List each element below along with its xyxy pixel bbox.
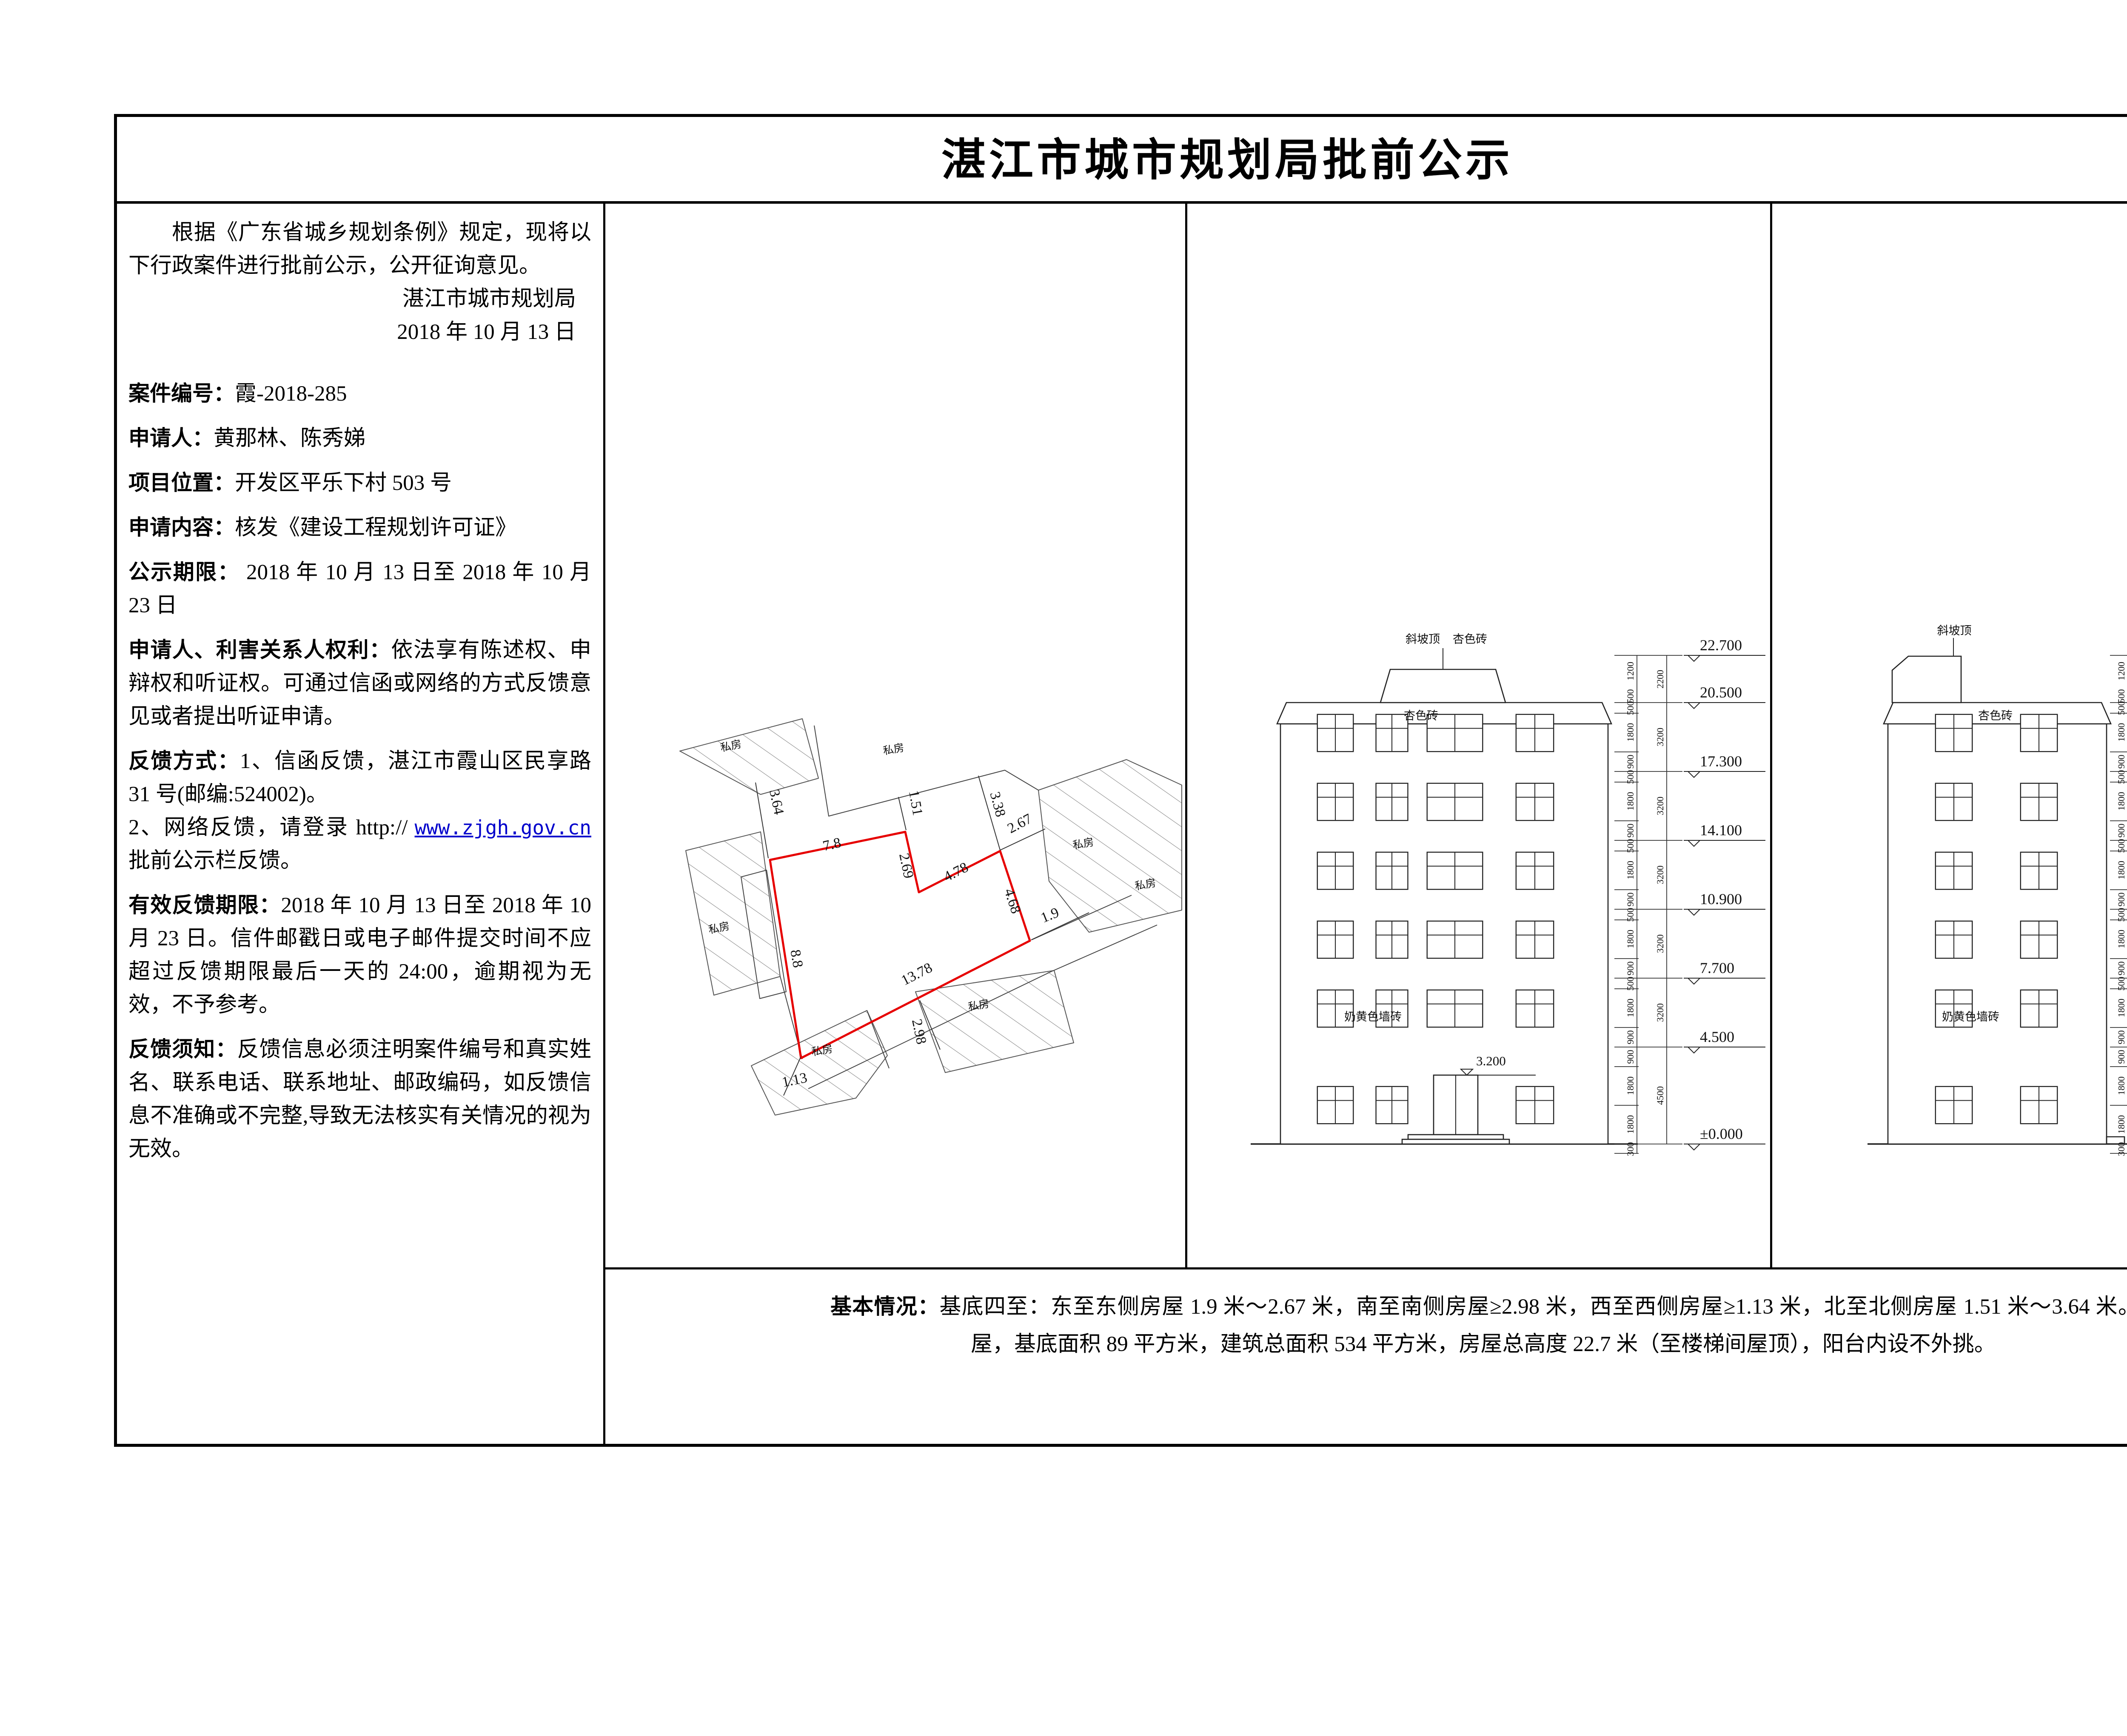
dim-inner: 500 xyxy=(1625,701,1636,715)
dim-inner: 1800 xyxy=(1625,792,1636,811)
level-value: 22.700 xyxy=(1700,637,1742,654)
front-elevation-building xyxy=(1251,648,1638,1144)
wall-brick-label: 奶黄色墙砖 xyxy=(1942,1010,1999,1023)
dim-inner: 900 xyxy=(2116,1030,2127,1044)
dim-inner: 1800 xyxy=(1625,1115,1636,1134)
dim-inner: 1800 xyxy=(2116,930,2127,948)
neighbor-parcel xyxy=(915,970,1074,1073)
neighbor-label: 私房 xyxy=(882,742,905,757)
dim-inner: 500 xyxy=(1625,839,1636,853)
level-value: 20.500 xyxy=(1700,684,1742,701)
dim-inner: 1800 xyxy=(2116,1115,2127,1134)
side-elevation-dims-inner: 1200 500 500 1800 900 500 1800 900 500 1… xyxy=(2116,662,2127,1156)
front-elevation-dims-outer: 2200 3200 3200 3200 3200 3200 4500 xyxy=(1655,670,1665,1105)
level-value: 17.300 xyxy=(1700,753,1742,770)
dim-inner: 900 xyxy=(1625,962,1636,976)
dim-inner: 900 xyxy=(1625,893,1636,907)
dim-outer: 3200 xyxy=(1655,797,1665,815)
dim-inner: 900 xyxy=(1625,755,1636,769)
dim-gap-top-left: 3.64 xyxy=(766,788,787,816)
roof-type-label: 斜坡顶 xyxy=(1937,624,1972,637)
dim-inner: 900 xyxy=(2116,755,2127,769)
dim-notch-edge: 2.69 xyxy=(896,852,917,880)
stair-bulkhead xyxy=(1892,656,1961,703)
dim-inner: 500 xyxy=(2116,908,2127,922)
dim-inner: 900 xyxy=(1625,1030,1636,1044)
neighbor-parcel xyxy=(1038,760,1182,932)
roof-type-label: 斜坡顶 xyxy=(1406,633,1440,646)
site-plan: 7.8 2.69 4.78 4.68 13.78 8.8 3.64 1.51 3… xyxy=(680,719,1182,1115)
dim-inner: 900 xyxy=(2116,962,2127,976)
dim-inner: 500 xyxy=(2116,839,2127,853)
door-step-upper xyxy=(1408,1135,1503,1139)
front-elevation: 3.200 斜坡顶 杏色砖 杏色砖 奶黄色墙砖 1200 500 500 180… xyxy=(1251,633,1765,1156)
dim-inner: 500 xyxy=(2116,977,2127,991)
neighbor-parcel xyxy=(680,719,818,794)
door-level-value: 3.200 xyxy=(1476,1053,1506,1068)
dim-inner: 500 xyxy=(1625,770,1636,784)
neighbor-parcel xyxy=(751,1010,887,1115)
dim-inner: 900 xyxy=(1625,824,1636,838)
door-step-lower xyxy=(1402,1139,1509,1144)
wall-brick-label: 奶黄色墙砖 xyxy=(1344,1010,1402,1023)
dim-inner: 300 xyxy=(1625,1142,1636,1156)
dim-inner: 900 xyxy=(2116,824,2127,838)
level-value: 14.100 xyxy=(1700,822,1742,839)
dim-inner: 1800 xyxy=(2116,723,2127,742)
front-elevation-dim-lines xyxy=(1614,655,1682,1153)
level-value: 4.500 xyxy=(1700,1028,1734,1045)
dim-outer: 3200 xyxy=(1655,865,1665,884)
front-elevation-level-values: 22.700 20.500 17.300 14.100 10.900 7.700… xyxy=(1700,637,1743,1142)
dim-inner: 1800 xyxy=(2116,861,2127,879)
dim-inner: 500 xyxy=(2116,701,2127,715)
dim-inner: 1800 xyxy=(1625,999,1636,1017)
dim-outer: 3200 xyxy=(1655,728,1665,746)
dim-right-edge: 4.68 xyxy=(1001,887,1024,916)
dim-inner: 500 xyxy=(1625,908,1636,922)
parapet-brick-label: 杏色砖 xyxy=(1404,709,1438,722)
level-value: 10.900 xyxy=(1700,891,1742,908)
dim-outer: 2200 xyxy=(1655,670,1665,689)
dim-inner: 900 xyxy=(2116,1050,2127,1064)
dim-inner: 500 xyxy=(2116,770,2127,784)
dim-inner: 300 xyxy=(2116,1142,2127,1156)
front-elevation-dims-inner: 1200 500 500 1800 900 500 1800 900 500 1… xyxy=(1625,662,1636,1156)
dim-outer: 4500 xyxy=(1655,1086,1665,1105)
drawings-canvas: 7.8 2.69 4.78 4.68 13.78 8.8 3.64 1.51 3… xyxy=(0,0,2127,1736)
side-elevation: 斜坡顶 杏色砖 奶黄色墙砖 1200 500 500 1800 900 500 … xyxy=(1868,624,2127,1156)
dim-bottom-edge: 13.78 xyxy=(899,960,935,989)
dim-inner: 1800 xyxy=(2116,999,2127,1017)
dim-upper-right-edge: 4.78 xyxy=(941,859,971,885)
dim-inner: 1800 xyxy=(2116,792,2127,811)
dim-outer: 3200 xyxy=(1655,934,1665,953)
site-plan-neighbor-parcels xyxy=(680,719,1182,1115)
dim-top-edge: 7.8 xyxy=(821,835,843,854)
dim-inner: 1800 xyxy=(2116,1076,2127,1095)
dim-inner: 500 xyxy=(1625,977,1636,991)
dim-inner: 1200 xyxy=(2116,662,2127,680)
neighbor-parcel xyxy=(686,832,780,995)
stair-bulkhead xyxy=(1380,669,1505,703)
dim-gap-right: 1.9 xyxy=(1038,905,1061,926)
dim-inner: 1200 xyxy=(1625,662,1636,680)
dim-inner: 1800 xyxy=(1625,930,1636,948)
parapet-brick-label: 杏色砖 xyxy=(1978,709,2013,722)
roof-brick-label: 杏色砖 xyxy=(1453,633,1487,646)
level-value: ±0.000 xyxy=(1700,1125,1743,1142)
dim-gap-top: 1.51 xyxy=(906,789,926,817)
dim-gap-right-upper: 2.67 xyxy=(1005,811,1035,837)
dim-inner: 900 xyxy=(1625,1050,1636,1064)
dim-inner: 900 xyxy=(2116,893,2127,907)
dim-inner: 1800 xyxy=(1625,723,1636,742)
dim-inner: 1800 xyxy=(1625,861,1636,879)
dim-left-edge: 8.8 xyxy=(787,948,806,969)
level-value: 7.700 xyxy=(1700,959,1734,976)
building-wall xyxy=(1888,724,2107,1144)
dim-outer: 3200 xyxy=(1655,1003,1665,1022)
dim-inner: 1800 xyxy=(1625,1076,1636,1095)
